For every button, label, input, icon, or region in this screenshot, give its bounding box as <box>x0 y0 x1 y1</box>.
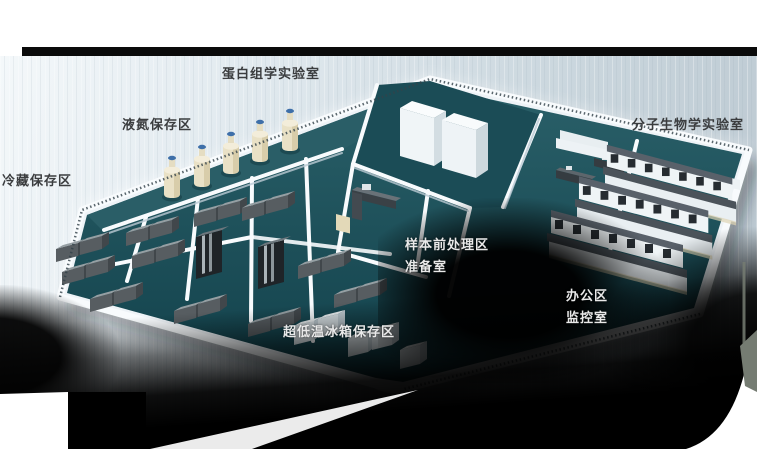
label-cold-storage-area: 冷藏保存区 <box>2 170 72 189</box>
right-edge-line <box>743 262 746 354</box>
label-office-area: 办公区 <box>566 285 608 304</box>
label-liquid-nitrogen-area: 液氮保存区 <box>122 114 192 133</box>
frame-artifacts <box>0 0 757 449</box>
lab-floorplan-scene: 蛋白组学实验室 液氮保存区 冷藏保存区 分子生物学实验室 样本前处理区 准备室 … <box>0 0 757 449</box>
label-preparation-room: 准备室 <box>405 256 447 275</box>
label-molecular-biology-lab: 分子生物学实验室 <box>632 114 744 133</box>
label-sample-pretreatment-area: 样本前处理区 <box>405 234 489 253</box>
label-ult-freezer-area: 超低温冰箱保存区 <box>283 321 395 340</box>
label-proteomics-lab: 蛋白组学实验室 <box>222 63 320 82</box>
top-black-bar <box>22 47 757 56</box>
bottom-left-black-wedge <box>68 392 146 449</box>
bottom-left-white <box>0 392 68 449</box>
label-monitoring-room: 监控室 <box>566 307 608 326</box>
bottom-white-sliver <box>150 390 418 449</box>
